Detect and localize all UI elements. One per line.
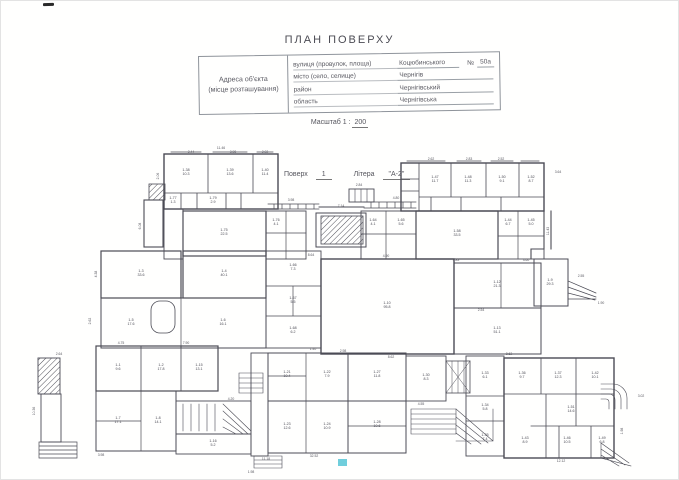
- dimension-label: 4.83: [453, 258, 460, 262]
- room-label: 1-3810.3: [182, 168, 189, 176]
- dimension-label: 2.54: [478, 308, 485, 312]
- dimension-label: 12.12: [557, 459, 566, 463]
- room-label: 1-528.7: [527, 175, 534, 183]
- address-row-region: область Чернігівська: [294, 94, 496, 108]
- dimension-label: 3.60: [523, 258, 530, 262]
- dimension-label: 1.98: [248, 470, 255, 474]
- dimension-label: 32.52: [310, 454, 319, 458]
- dimension-label: 7.14: [338, 204, 345, 208]
- stair-treads-left: [183, 404, 215, 431]
- room-label: 1-369.7: [518, 371, 525, 379]
- dimension-label: 2.62: [428, 157, 435, 161]
- room-label: 1-357.4: [481, 433, 488, 441]
- dimension-label: 2.98: [340, 349, 347, 353]
- address-row-district: район Чернігівський: [293, 81, 495, 95]
- district-label: район: [293, 85, 397, 96]
- room-label: 1-345.8: [481, 403, 488, 411]
- bay-element: [151, 301, 175, 333]
- dimension-label: 11.43: [546, 227, 550, 235]
- dimension-label: 11.18: [262, 457, 270, 461]
- room-label: 1-227.9: [323, 370, 330, 378]
- region-value: Чернігівська: [398, 96, 494, 107]
- address-row-city: місто (село, селище) Чернігів: [293, 69, 495, 83]
- room-label: 1-7522.5: [220, 228, 227, 236]
- dimension-label: 11.46: [217, 146, 225, 150]
- room-label: 1-667.3: [289, 263, 296, 271]
- room-label: 1-440.1: [221, 269, 228, 277]
- dimension-labels: 11.462.443.982.022.066.084.382.622.6410.…: [32, 146, 644, 474]
- room-label: 1-333.6: [138, 269, 145, 277]
- room-label: 1-655.6: [397, 218, 404, 226]
- room-label: 1-4610.5: [563, 436, 570, 444]
- scanned-floor-plan-page: { "header": { "title": "ПЛАН ПОВЕРХУ" },…: [0, 0, 679, 480]
- room-label: 1-4210.1: [591, 371, 598, 379]
- room-label: 1-496.8: [598, 436, 605, 444]
- plan-walls: [38, 152, 631, 468]
- rooms-lower-central: [101, 251, 596, 354]
- dimension-label: 4.55: [418, 402, 425, 406]
- dimension-label: 2.84: [356, 183, 363, 187]
- scale-line: Масштаб 1 : 200: [1, 119, 678, 126]
- exterior-stair-left: [38, 358, 60, 394]
- dimension-label: 2.02: [262, 150, 269, 154]
- dimension-label: 4.38: [94, 271, 98, 278]
- room-label: 1-4811.3: [464, 175, 471, 183]
- fan-stair-right: [568, 281, 596, 300]
- address-table-caption: Адреса об'єкта (місце розташування): [199, 56, 289, 114]
- address-table-fields: вулиця (провулок, площа) Коцюбинського №…: [288, 52, 500, 112]
- stair-hatch-central: [321, 216, 363, 244]
- dimension-label: 3.64: [555, 170, 562, 174]
- dimension-label: 3.98: [288, 198, 295, 202]
- number-value: 50а: [477, 58, 494, 67]
- dimension-label: 1.90: [598, 301, 605, 305]
- room-label: 1-5114.6: [567, 405, 574, 413]
- room-label: 1-165.2: [209, 439, 216, 447]
- room-label: 1-517.6: [128, 318, 135, 326]
- room-label: 1-438.9: [521, 436, 528, 444]
- dimension-label: 4.75: [118, 341, 125, 345]
- stair-left-upper: [144, 184, 165, 247]
- room-label: 1-4011.4: [261, 168, 268, 176]
- street-label: вулиця (провулок, площа): [293, 59, 397, 70]
- region-label: область: [294, 97, 398, 108]
- dimension-label: 2.64: [56, 352, 63, 356]
- dimension-label: 1.98: [620, 428, 624, 435]
- room-label: 1-2110.4: [283, 370, 290, 378]
- room-label: 1-1221.3: [493, 280, 500, 288]
- dimension-label: 4.80: [393, 196, 400, 200]
- dimension-label: 8.62: [388, 355, 395, 359]
- address-table: Адреса об'єкта (місце розташування) вули…: [198, 51, 501, 115]
- room-label: 1-675.5: [289, 296, 296, 304]
- room-label: 1-455.0: [527, 218, 534, 226]
- dimension-label: 2.55: [578, 274, 585, 278]
- room-label: 1-5833.5: [453, 229, 460, 237]
- dimension-label: 2.06: [156, 173, 160, 180]
- city-value: Чернігів: [397, 71, 493, 82]
- room-label: 1-814.1: [155, 416, 162, 424]
- block-top-left: [164, 152, 278, 209]
- room-label: 1-2711.8: [373, 370, 380, 378]
- stamp-fragment-mark: [338, 459, 347, 466]
- room-label: 1-644.1: [369, 218, 376, 226]
- room-label: 1-771.3: [169, 196, 176, 204]
- dimension-label: 2.44: [188, 150, 195, 154]
- dimension-label: 2.52: [498, 157, 505, 161]
- room-label: 1-616.1: [220, 318, 227, 326]
- room-label: 1-3712.3: [554, 371, 561, 379]
- page-title: ПЛАН ПОВЕРХУ: [1, 34, 678, 46]
- dimension-label: 6.08: [138, 223, 142, 230]
- rooms-bottom-band: [38, 346, 631, 468]
- room-label: 1-4711.7: [431, 175, 438, 183]
- street-value: Коцюбинського: [397, 58, 459, 68]
- room-label: 1-1351.1: [493, 326, 500, 334]
- dimension-label: 4.20: [228, 397, 235, 401]
- room-label: 1-336.1: [481, 371, 488, 379]
- room-label: 1-509.1: [498, 175, 505, 183]
- dimension-label: 3.02: [638, 394, 645, 398]
- room-label: 1-308.3: [422, 373, 429, 381]
- room-label: 1-2810.6: [373, 420, 380, 428]
- room-label: 1-217.8: [158, 363, 165, 371]
- floor-plan-drawing: 1-3810.31-3913.61-4011.41-771.31-792.91-…: [29, 141, 664, 479]
- dimension-label: 2.83: [466, 157, 473, 161]
- main-staircase: [411, 409, 456, 434]
- room-label: 1-929.3: [547, 278, 554, 286]
- dimension-label: 7.90: [183, 341, 190, 345]
- room-label: 1-1513.1: [195, 363, 202, 371]
- caption-line2: (місце розташування): [208, 84, 279, 95]
- dimension-label: 3.98: [98, 453, 105, 457]
- room-label: 1-1095.8: [383, 301, 390, 309]
- scale-value: 200: [352, 119, 368, 128]
- dimension-label: 10.36: [32, 407, 36, 416]
- dimension-label: 2.62: [88, 318, 92, 325]
- dimension-label: 3.98: [230, 150, 237, 154]
- district-value: Чернігівський: [397, 83, 493, 94]
- room-label: 1-2410.9: [323, 422, 330, 430]
- dimension-label: 1.40: [310, 347, 317, 351]
- number-label: №: [467, 59, 474, 67]
- room-label: 1-764.1: [272, 218, 279, 226]
- city-label: місто (село, селище): [293, 72, 397, 83]
- room-label: 1-686.2: [289, 326, 296, 334]
- room-label: 1-792.9: [209, 196, 216, 204]
- room-label: 1-3913.6: [226, 168, 233, 176]
- room-label: 1-717.1: [115, 416, 122, 424]
- room-label: 1-19.6: [115, 363, 120, 371]
- address-row-street: вулиця (провулок, площа) Коцюбинського №…: [293, 56, 495, 70]
- dimension-label: 4.90: [383, 254, 390, 258]
- room-label: 1-446.7: [504, 218, 511, 226]
- scan-artifact-mark: [43, 3, 54, 6]
- room-label: 1-2312.6: [283, 422, 290, 430]
- dimension-label: 8.64: [308, 253, 315, 257]
- dimension-label: 8.62: [506, 352, 513, 356]
- fan-stair-bottom-right: [601, 443, 631, 466]
- scale-label: Масштаб 1 :: [311, 119, 351, 126]
